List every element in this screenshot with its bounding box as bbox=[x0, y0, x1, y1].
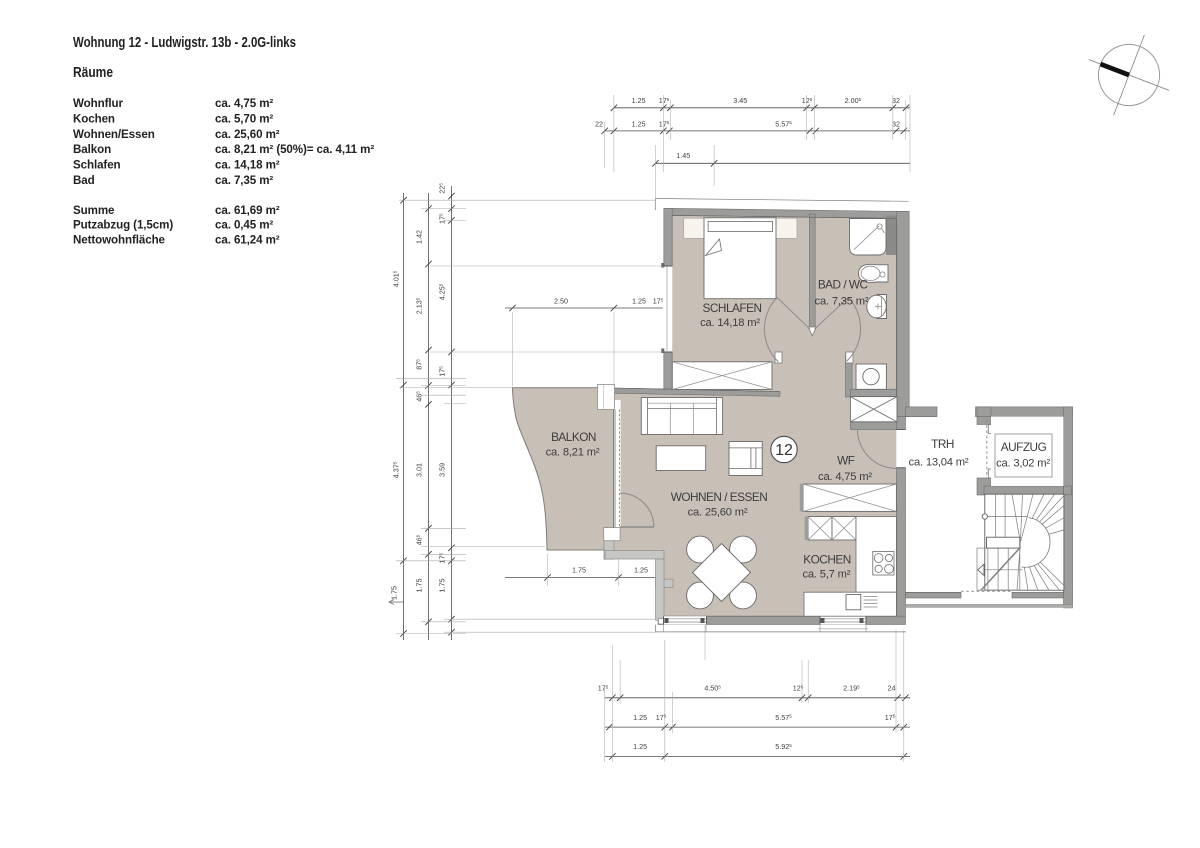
svg-text:ca. 0,45 m²: ca. 0,45 m² bbox=[215, 218, 273, 231]
svg-text:ca. 14,18 m²: ca. 14,18 m² bbox=[700, 317, 760, 329]
svg-text:ca. 4,75 m²: ca. 4,75 m² bbox=[215, 97, 273, 110]
svg-text:1.75: 1.75 bbox=[572, 566, 586, 575]
svg-text:Summe: Summe bbox=[73, 204, 115, 217]
svg-text:1.25: 1.25 bbox=[633, 713, 647, 722]
svg-text:22: 22 bbox=[595, 119, 603, 128]
svg-text:WF: WF bbox=[837, 454, 855, 468]
svg-text:Wohnung 12 - Ludwigstr. 13b -: Wohnung 12 - Ludwigstr. 13b - 2.0G-links bbox=[73, 34, 296, 51]
svg-text:1.25: 1.25 bbox=[632, 119, 646, 128]
svg-text:1.25: 1.25 bbox=[634, 566, 648, 575]
svg-text:24: 24 bbox=[888, 684, 896, 693]
svg-text:Bad: Bad bbox=[73, 174, 95, 187]
svg-text:ca. 14,18 m²: ca. 14,18 m² bbox=[215, 159, 280, 172]
svg-text:1.45: 1.45 bbox=[676, 151, 690, 160]
svg-text:SCHLAFEN: SCHLAFEN bbox=[703, 301, 762, 315]
svg-text:ca. 61,24 m²: ca. 61,24 m² bbox=[215, 233, 280, 246]
svg-text:1.42: 1.42 bbox=[415, 230, 424, 244]
svg-text:32: 32 bbox=[892, 119, 900, 128]
svg-text:3.01: 3.01 bbox=[415, 463, 424, 477]
svg-text:TRH: TRH bbox=[931, 437, 954, 451]
svg-text:WOHNEN / ESSEN: WOHNEN / ESSEN bbox=[671, 490, 768, 504]
svg-text:ca. 25,60 m²: ca. 25,60 m² bbox=[688, 507, 748, 519]
svg-text:3.59: 3.59 bbox=[438, 463, 447, 477]
svg-text:Räume: Räume bbox=[73, 64, 113, 81]
svg-text:Nettowohnfläche: Nettowohnfläche bbox=[73, 233, 166, 246]
svg-text:ca. 5,7 m²: ca. 5,7 m² bbox=[803, 569, 851, 581]
svg-text:AUFZUG: AUFZUG bbox=[1001, 440, 1047, 454]
svg-text:32: 32 bbox=[892, 96, 900, 105]
svg-text:Putzabzug (1,5cm): Putzabzug (1,5cm) bbox=[73, 218, 173, 231]
svg-text:1.75: 1.75 bbox=[415, 579, 424, 593]
svg-text:Wohnflur: Wohnflur bbox=[73, 97, 123, 110]
svg-text:Balkon: Balkon bbox=[73, 143, 111, 156]
svg-text:ca. 7,35 m²: ca. 7,35 m² bbox=[815, 296, 869, 308]
svg-text:ca. 3,02 m²: ca. 3,02 m² bbox=[996, 458, 1050, 470]
svg-text:BALKON: BALKON bbox=[551, 430, 596, 444]
svg-text:2.50: 2.50 bbox=[554, 297, 568, 306]
svg-text:Wohnen/Essen: Wohnen/Essen bbox=[73, 128, 155, 141]
svg-text:ca. 13,04 m²: ca. 13,04 m² bbox=[909, 456, 969, 468]
svg-text:BAD / WC: BAD / WC bbox=[818, 278, 869, 292]
svg-text:ca. 61,69 m²: ca. 61,69 m² bbox=[215, 204, 280, 217]
svg-text:ca. 8,21 m²: ca. 8,21 m² bbox=[546, 447, 600, 459]
svg-text:ca. 5,70 m²: ca. 5,70 m² bbox=[215, 112, 273, 125]
svg-text:KOCHEN: KOCHEN bbox=[803, 552, 850, 566]
svg-text:Schlafen: Schlafen bbox=[73, 159, 121, 172]
svg-text:Kochen: Kochen bbox=[73, 112, 115, 125]
svg-text:ca. 25,60 m²: ca. 25,60 m² bbox=[215, 128, 280, 141]
svg-text:ca. 4,75 m²: ca. 4,75 m² bbox=[818, 471, 872, 483]
svg-text:ca. 7,35 m²: ca. 7,35 m² bbox=[215, 174, 273, 187]
svg-text:3.45: 3.45 bbox=[733, 96, 747, 105]
svg-text:12: 12 bbox=[775, 442, 793, 459]
svg-text:1.25: 1.25 bbox=[633, 742, 647, 751]
svg-text:1.25: 1.25 bbox=[632, 297, 646, 306]
svg-text:1.25: 1.25 bbox=[632, 96, 646, 105]
svg-text:ca. 8,21 m² (50%)= ca. 4,11 m²: ca. 8,21 m² (50%)= ca. 4,11 m² bbox=[215, 143, 374, 156]
svg-text:1.75: 1.75 bbox=[390, 586, 399, 600]
svg-text:1.75: 1.75 bbox=[438, 579, 447, 593]
